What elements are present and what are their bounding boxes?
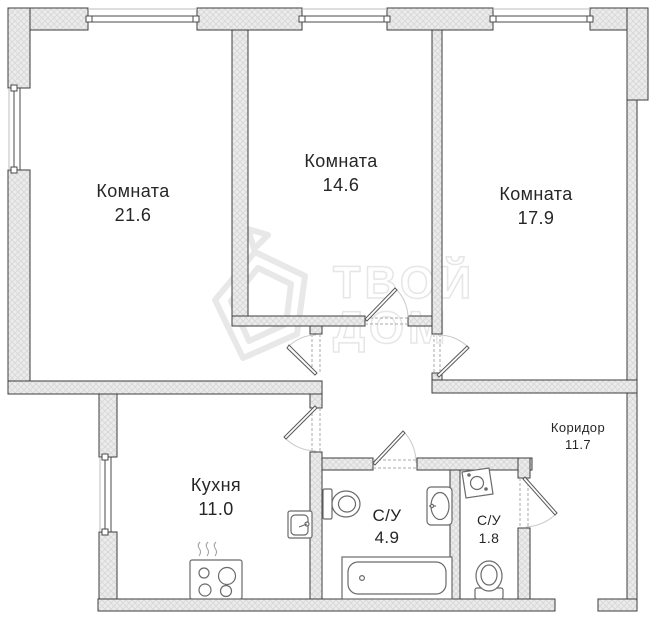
room-area: 14.6 bbox=[304, 174, 377, 198]
basin-icon-bathroom bbox=[427, 487, 452, 525]
floor-plan: ТВОЙ ДОМ bbox=[0, 0, 654, 619]
wall-kitchen-left-lower bbox=[99, 532, 117, 599]
room-name: Комната bbox=[304, 150, 377, 174]
room-area: 4.9 bbox=[373, 527, 402, 549]
room-label-kitchen: Кухня 11.0 bbox=[191, 474, 241, 522]
door-arc-wc bbox=[526, 514, 556, 527]
walls bbox=[8, 8, 648, 611]
room-area: 11.7 bbox=[551, 436, 605, 453]
wall-bathroom-top-left bbox=[322, 458, 373, 470]
wall-left-lower bbox=[8, 170, 30, 394]
wall-top-3 bbox=[387, 8, 493, 30]
wall-stub-kitchen-door bbox=[310, 394, 322, 408]
room-name: Коридор bbox=[551, 419, 605, 436]
bathtub-icon bbox=[342, 557, 452, 599]
room-label-14-6: Комната 14.6 bbox=[304, 150, 377, 198]
room-label-21-6: Комната 21.6 bbox=[96, 180, 169, 228]
wall-right-upper bbox=[627, 8, 648, 100]
room-name: С/У bbox=[373, 505, 402, 527]
toilet-icon-bathroom bbox=[323, 489, 360, 519]
window-kitchen-left bbox=[100, 454, 111, 535]
room-area: 11.0 bbox=[191, 498, 241, 522]
stove-icon bbox=[190, 542, 242, 599]
wall-wc-right-lower bbox=[518, 528, 530, 599]
wall-room2-bottom-left bbox=[232, 316, 365, 326]
wall-bathroom-top-right bbox=[417, 458, 532, 470]
wall-room1-bottom bbox=[8, 381, 322, 394]
floor-plan-drawing: ТВОЙ ДОМ bbox=[0, 0, 654, 619]
wall-top-2 bbox=[197, 8, 302, 30]
wall-right-lower bbox=[627, 100, 637, 611]
window-room2-top bbox=[299, 9, 390, 22]
room-name: Комната bbox=[499, 183, 572, 207]
room-label-17-9: Комната 17.9 bbox=[499, 183, 572, 231]
room-label-bathroom: С/У 4.9 bbox=[373, 505, 402, 550]
wall-bottom-left bbox=[98, 599, 555, 611]
wall-room3-bottom bbox=[432, 380, 637, 393]
window-room1-top bbox=[86, 9, 199, 22]
window-room3-top bbox=[490, 9, 593, 22]
door-arc-bathroom bbox=[404, 432, 416, 463]
room-name: С/У bbox=[477, 511, 501, 529]
corner-sink-icon-wc bbox=[462, 468, 493, 498]
room-label-corridor: Коридор 11.7 bbox=[551, 419, 605, 453]
wall-wc-right-upper bbox=[518, 458, 530, 478]
room-name: Комната bbox=[96, 180, 169, 204]
wall-left-upper bbox=[8, 8, 30, 88]
room-area: 17.9 bbox=[499, 207, 572, 231]
kitchen-sink-icon bbox=[288, 511, 312, 538]
room-area: 21.6 bbox=[96, 204, 169, 228]
wall-bottom-right bbox=[598, 599, 637, 611]
room-name: Кухня bbox=[191, 474, 241, 498]
room-area: 1.8 bbox=[477, 529, 501, 547]
wall-room1-room2 bbox=[232, 30, 248, 326]
wall-kitchen-left-upper bbox=[99, 394, 117, 457]
window-room1-left bbox=[9, 85, 20, 173]
wall-stub-room1-door bbox=[310, 326, 322, 334]
room-label-wc: С/У 1.8 bbox=[477, 511, 501, 548]
toilet-icon-wc bbox=[475, 561, 503, 599]
wall-room3-left bbox=[432, 30, 442, 334]
door-arc-kitchen bbox=[285, 438, 316, 451]
